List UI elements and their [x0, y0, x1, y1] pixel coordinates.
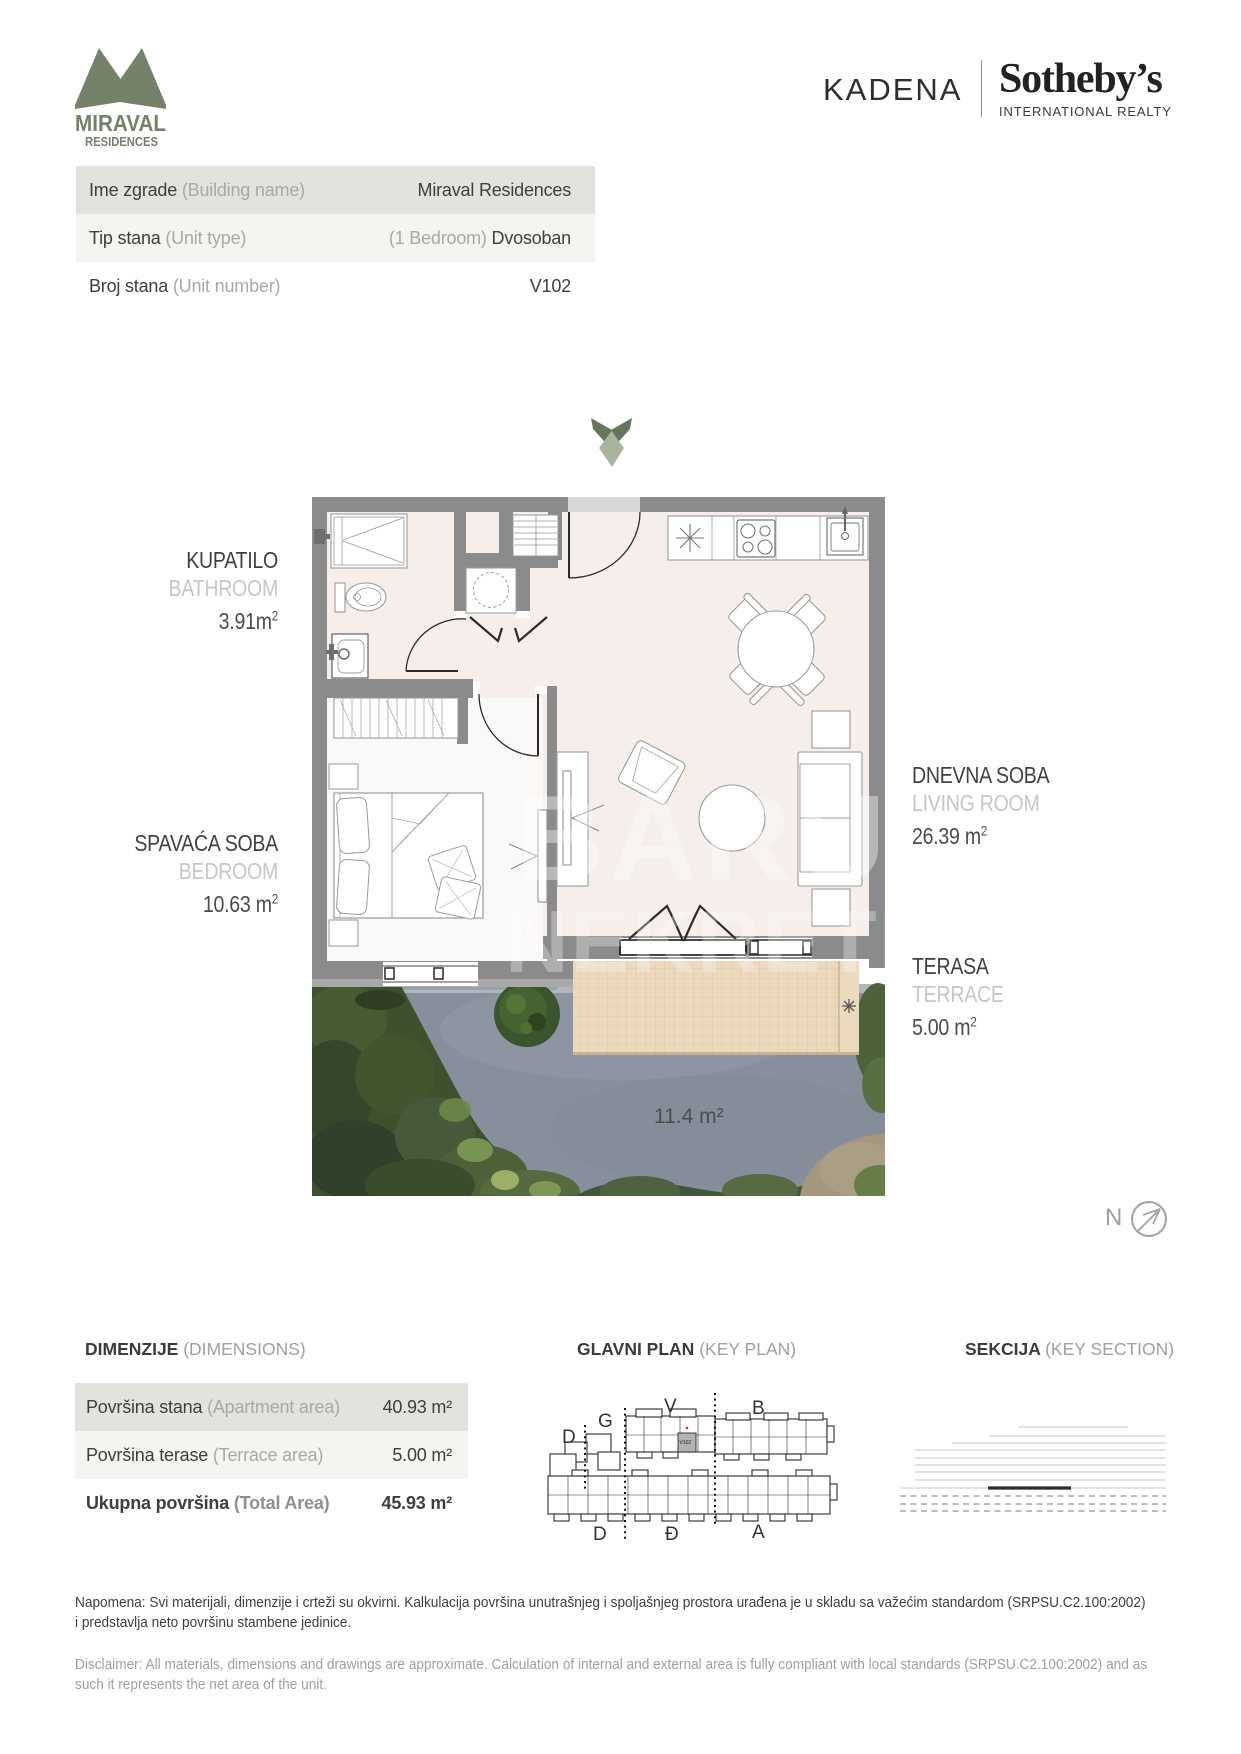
- svg-text:B: B: [752, 1398, 765, 1419]
- svg-text:D: D: [593, 1524, 607, 1545]
- svg-text:V: V: [664, 1396, 677, 1417]
- svg-text:V102: V102: [680, 1440, 692, 1446]
- svg-text:11.4 m²: 11.4 m²: [654, 1105, 724, 1128]
- svg-text:Đ: Đ: [665, 1524, 679, 1545]
- svg-text:D: D: [562, 1427, 576, 1448]
- svg-text:A: A: [752, 1522, 765, 1543]
- svg-text:G: G: [598, 1411, 613, 1432]
- svg-text:BARU: BARU: [515, 770, 891, 906]
